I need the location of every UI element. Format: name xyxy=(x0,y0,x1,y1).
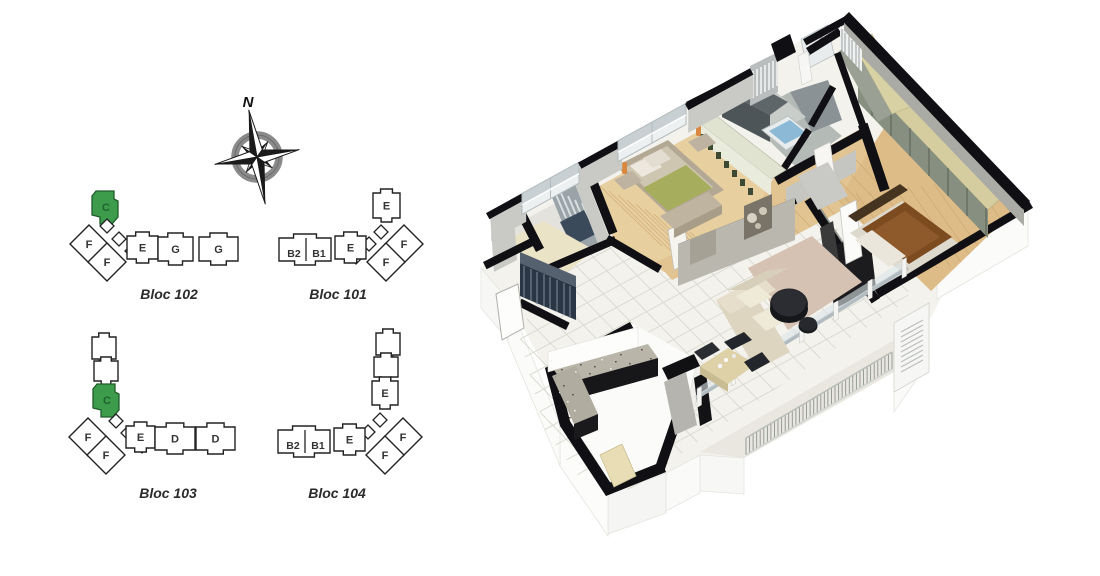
svg-text:E: E xyxy=(381,388,388,400)
svg-text:F: F xyxy=(401,239,408,251)
svg-text:B1: B1 xyxy=(312,248,326,260)
svg-text:E: E xyxy=(137,432,144,444)
svg-text:F: F xyxy=(382,450,389,462)
svg-text:E: E xyxy=(346,435,353,447)
svg-text:N: N xyxy=(243,94,255,111)
svg-text:B2: B2 xyxy=(286,440,300,452)
svg-text:E: E xyxy=(347,243,354,255)
svg-text:C: C xyxy=(103,395,111,407)
svg-text:F: F xyxy=(85,432,92,444)
svg-text:F: F xyxy=(103,450,110,462)
svg-text:G: G xyxy=(214,244,223,256)
svg-text:Bloc 101: Bloc 101 xyxy=(309,286,367,302)
svg-text:F: F xyxy=(86,239,93,251)
svg-text:Bloc 103: Bloc 103 xyxy=(139,485,197,501)
svg-text:F: F xyxy=(383,257,390,269)
svg-text:D: D xyxy=(212,434,220,446)
svg-text:Bloc 104: Bloc 104 xyxy=(308,485,366,501)
svg-text:E: E xyxy=(383,201,390,213)
svg-text:B2: B2 xyxy=(287,248,301,260)
svg-text:F: F xyxy=(104,257,111,269)
svg-text:D: D xyxy=(171,434,179,446)
svg-text:E: E xyxy=(139,243,146,255)
svg-text:Bloc 102: Bloc 102 xyxy=(140,286,198,302)
svg-text:C: C xyxy=(102,202,110,214)
svg-text:F: F xyxy=(400,432,407,444)
svg-text:B1: B1 xyxy=(311,440,325,452)
svg-text:G: G xyxy=(171,244,180,256)
